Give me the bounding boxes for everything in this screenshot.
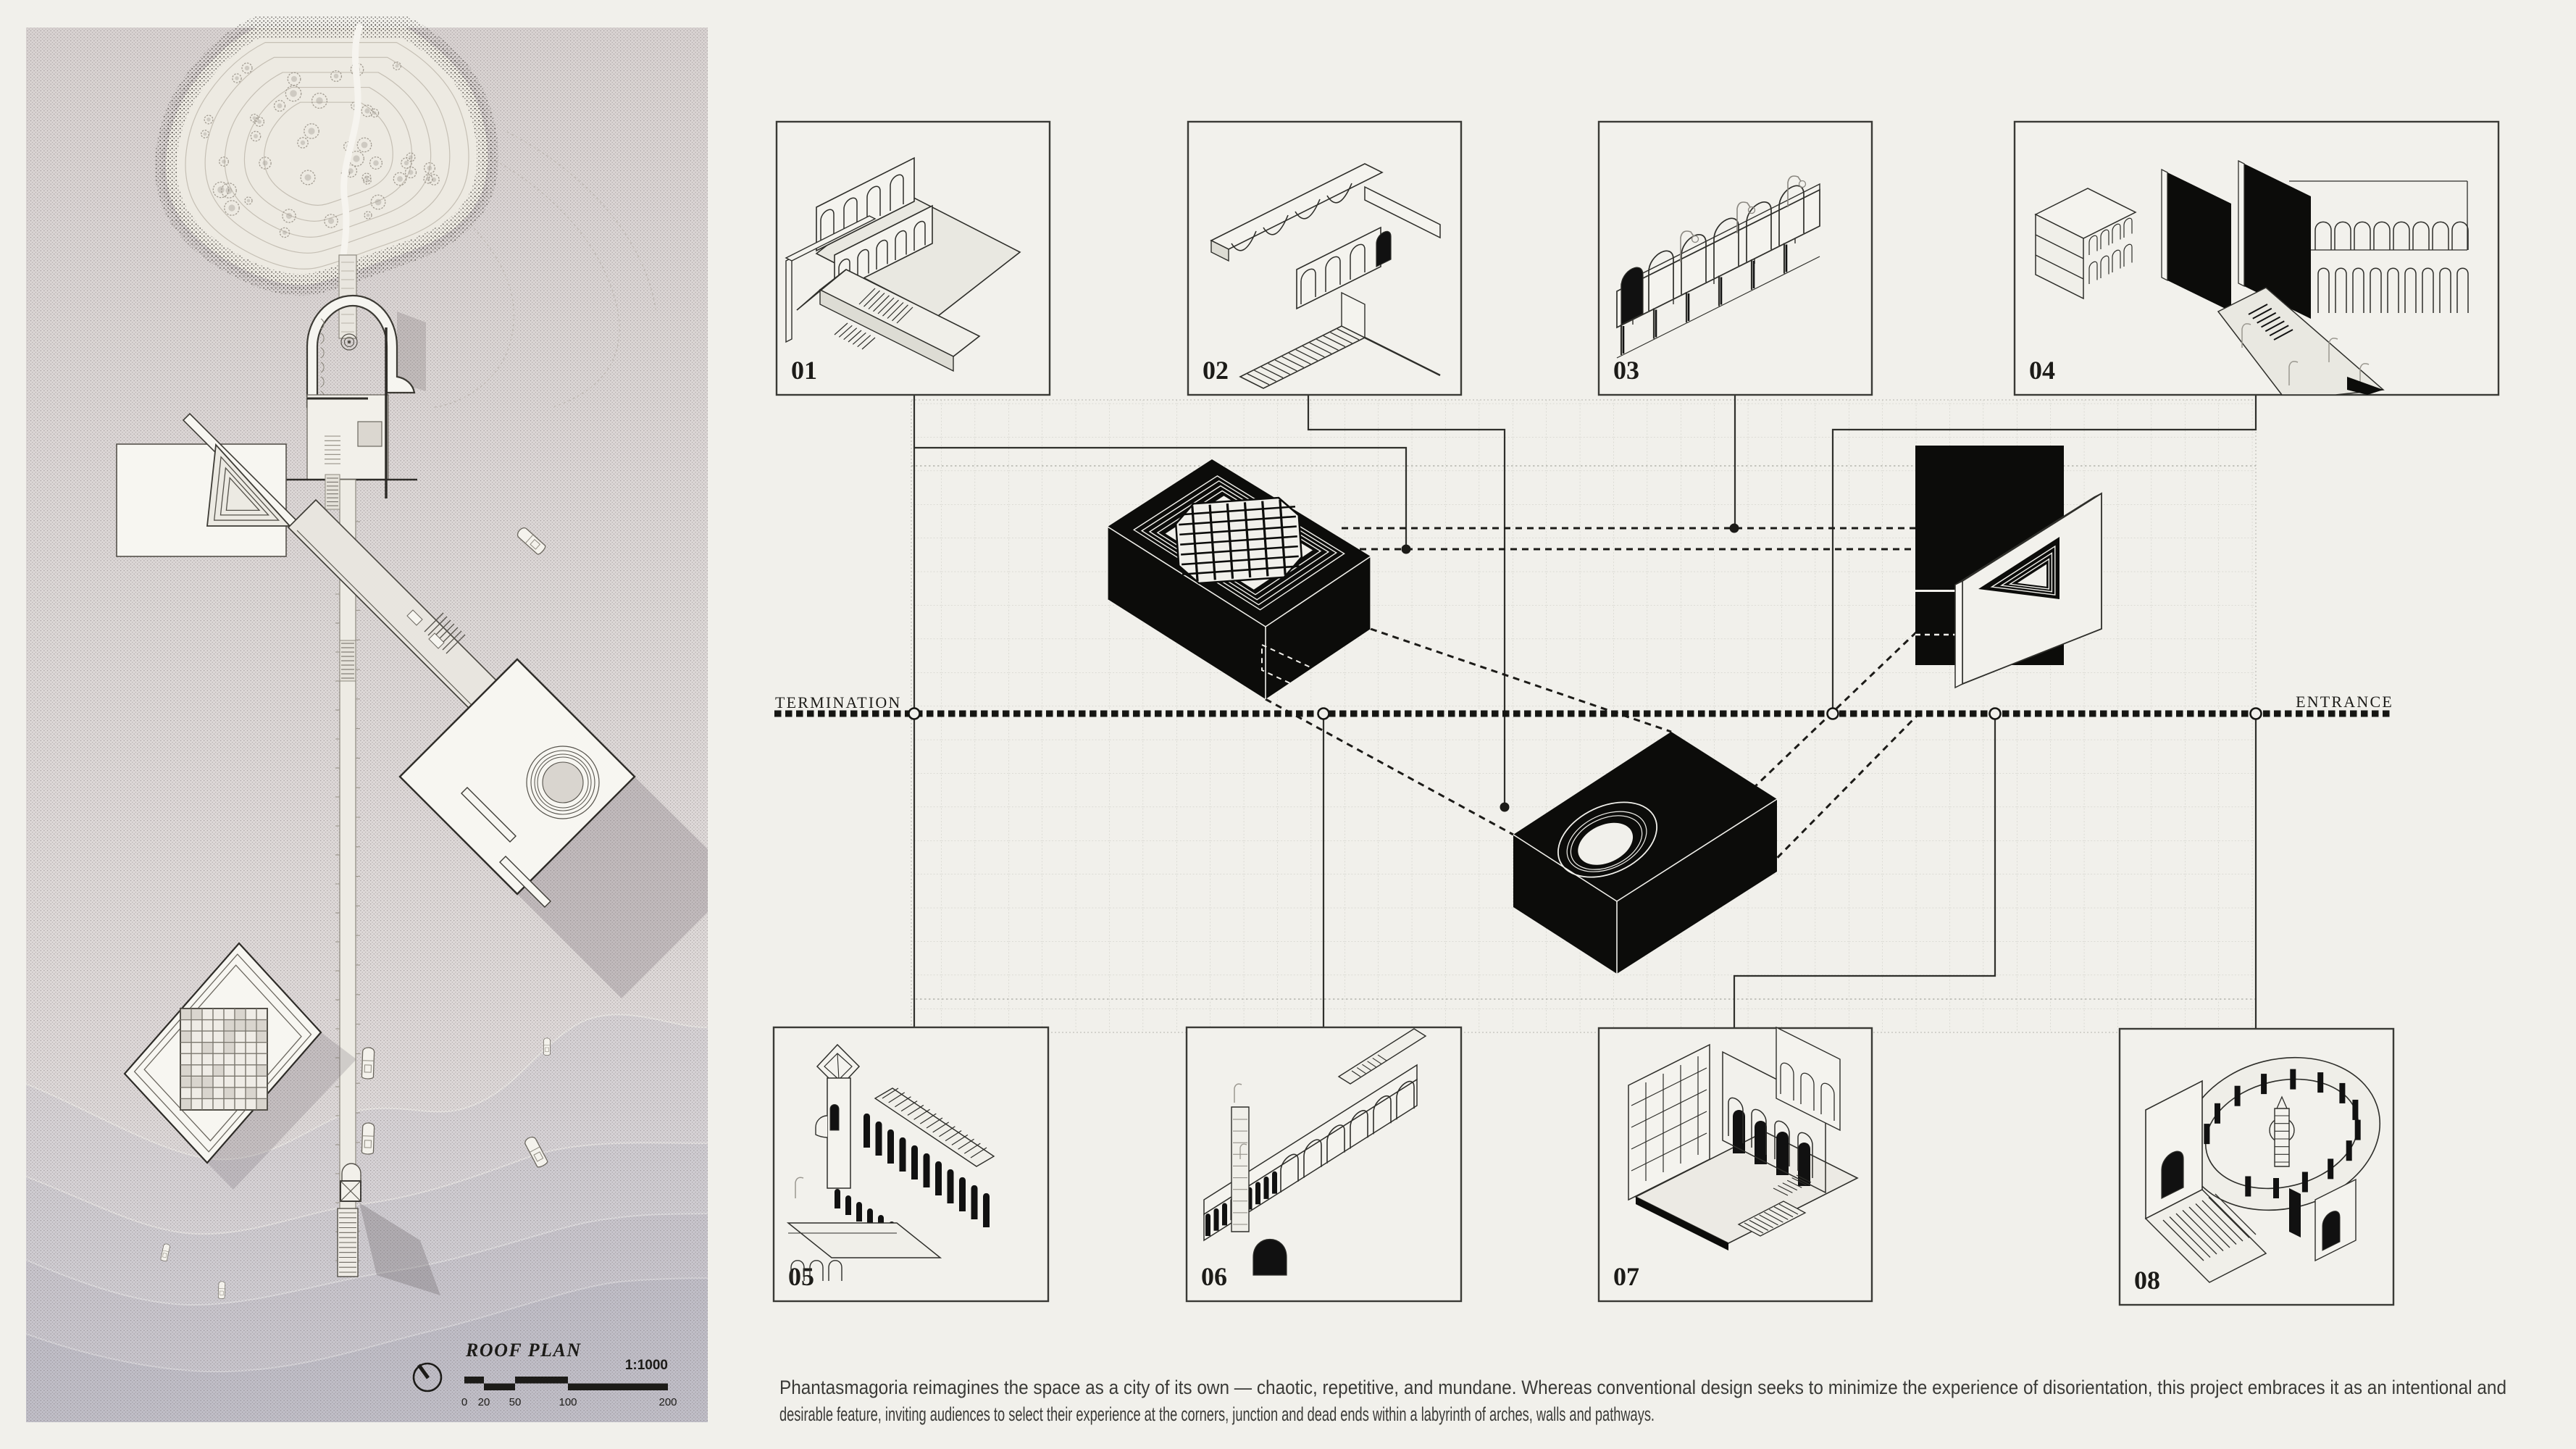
svg-text:ROOF PLAN: ROOF PLAN: [465, 1340, 582, 1361]
svg-text:20: 20: [478, 1396, 490, 1408]
svg-text:100: 100: [559, 1396, 577, 1408]
svg-text:01: 01: [791, 356, 817, 385]
svg-text:Phantasmagoria reimagines the: Phantasmagoria reimagines the space as a…: [779, 1377, 2506, 1398]
svg-text:03: 03: [1613, 356, 1639, 385]
svg-text:0: 0: [461, 1396, 467, 1408]
svg-text:desirable feature, inviting au: desirable feature, inviting audiences to…: [779, 1403, 1655, 1425]
svg-text:200: 200: [658, 1396, 677, 1408]
svg-text:06: 06: [1201, 1262, 1227, 1291]
svg-text:1:1000: 1:1000: [625, 1358, 668, 1373]
svg-text:04: 04: [2029, 356, 2055, 385]
svg-text:07: 07: [1613, 1262, 1639, 1291]
svg-text:TERMINATION: TERMINATION: [775, 693, 902, 711]
svg-text:ENTRANCE: ENTRANCE: [2296, 693, 2393, 711]
svg-text:08: 08: [2134, 1266, 2160, 1295]
svg-text:02: 02: [1203, 356, 1229, 385]
svg-text:50: 50: [509, 1396, 522, 1408]
